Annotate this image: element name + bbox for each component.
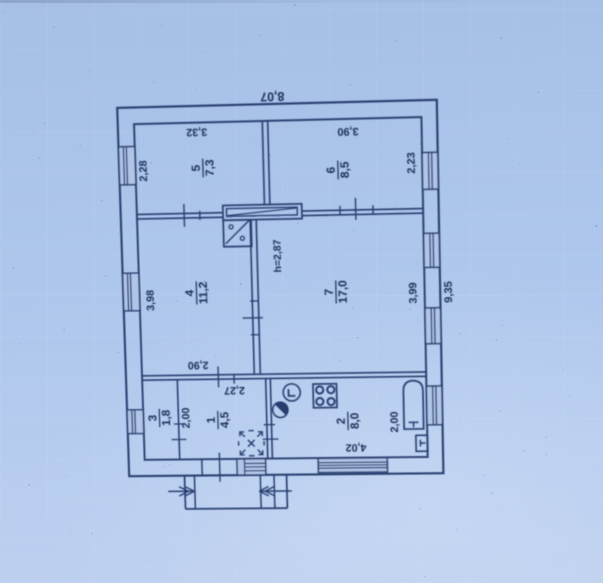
svg-text:11,2: 11,2 <box>196 281 210 304</box>
svg-text:3: 3 <box>146 414 160 421</box>
svg-text:4: 4 <box>182 289 196 296</box>
svg-text:2,27: 2,27 <box>224 384 245 396</box>
svg-text:2,00: 2,00 <box>389 411 401 432</box>
svg-text:5: 5 <box>189 164 203 171</box>
svg-text:2,90: 2,90 <box>188 359 209 371</box>
svg-text:4,5: 4,5 <box>217 411 231 428</box>
svg-text:8,0: 8,0 <box>347 412 361 429</box>
svg-text:8,5: 8,5 <box>337 161 351 178</box>
svg-text:3,98: 3,98 <box>145 290 157 311</box>
svg-text:8,07: 8,07 <box>260 89 285 104</box>
svg-text:2,28: 2,28 <box>138 160 151 181</box>
svg-text:3,99: 3,99 <box>407 282 419 303</box>
svg-text:2,00: 2,00 <box>180 408 192 429</box>
svg-text:17,0: 17,0 <box>335 280 349 304</box>
svg-text:3,90: 3,90 <box>337 125 358 138</box>
svg-text:9,35: 9,35 <box>443 281 455 303</box>
svg-text:6: 6 <box>324 166 338 173</box>
svg-text:h=2,87: h=2,87 <box>272 239 284 272</box>
svg-text:2: 2 <box>334 417 348 424</box>
svg-text:3,32: 3,32 <box>186 125 207 138</box>
svg-text:7: 7 <box>322 288 336 295</box>
svg-text:7,3: 7,3 <box>202 159 216 176</box>
svg-text:1: 1 <box>204 416 218 423</box>
svg-text:2,23: 2,23 <box>405 152 418 174</box>
svg-text:1,8: 1,8 <box>159 409 173 426</box>
svg-text:4,02: 4,02 <box>345 441 366 453</box>
